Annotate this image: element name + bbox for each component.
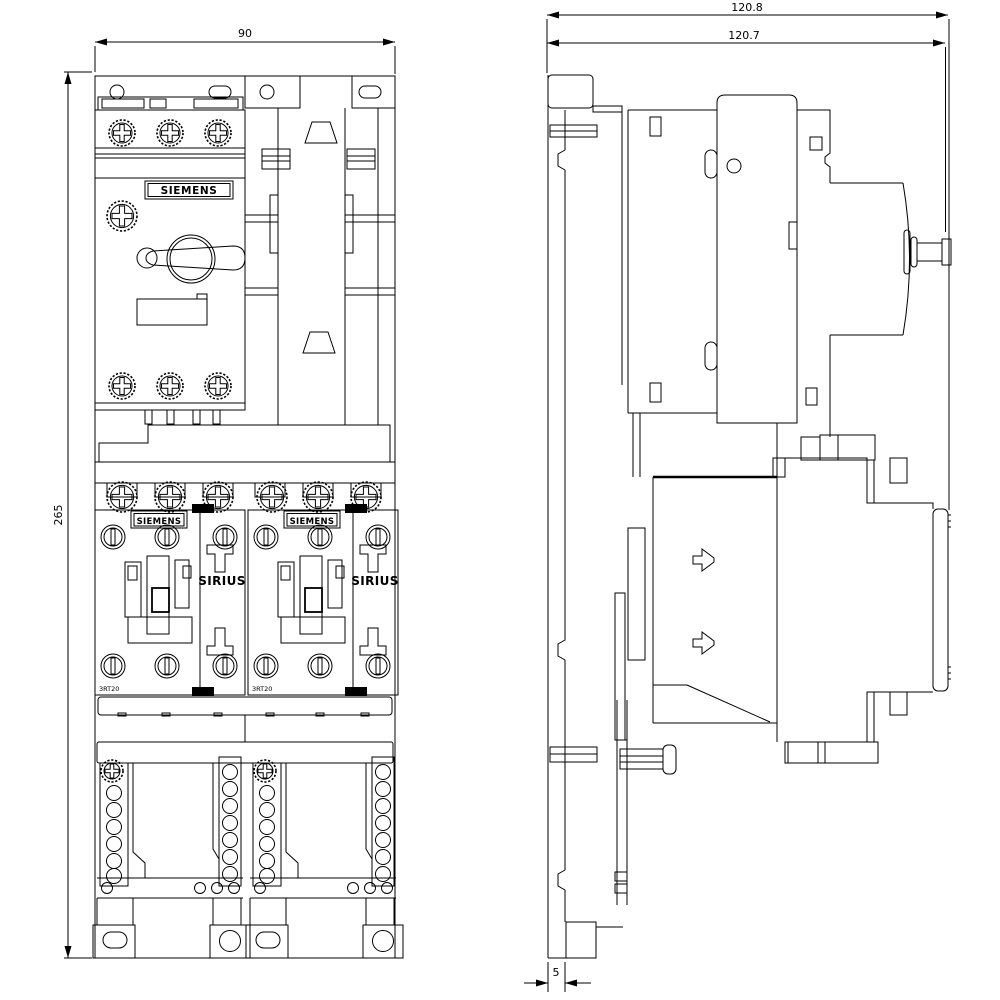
keyhole-slot-icon	[693, 632, 714, 654]
breaker-side-profile	[797, 110, 951, 460]
screw-icon	[205, 373, 231, 399]
dim-label-265: 265	[52, 505, 65, 526]
dimension-depth-overall: 120.8	[547, 1, 949, 510]
technical-drawing: SIEMENS SIRIUS 3RT20	[0, 0, 1000, 1000]
terminal-block-right	[246, 757, 403, 958]
adapter-rear-housing	[622, 95, 797, 423]
setting-window	[137, 299, 207, 325]
busbar-section	[95, 425, 395, 512]
wiring-link-section	[97, 697, 393, 763]
dim-label-120-7: 120.7	[728, 29, 760, 42]
dimension-drawing-canvas: SIEMENS SIRIUS 3RT20	[0, 0, 1000, 1000]
dimension-plate-thickness: 5	[524, 962, 591, 992]
dim-label-120-8: 120.8	[731, 1, 763, 14]
rail-clip	[305, 122, 337, 143]
screw-icon	[109, 373, 135, 399]
breaker-brand-label: SIEMENS	[161, 185, 218, 197]
keyhole-slot-icon	[693, 549, 714, 571]
contactor-right	[248, 504, 399, 696]
dimension-front-height: 265	[52, 72, 92, 958]
dim-label-5: 5	[553, 966, 560, 979]
mounting-hole	[260, 85, 274, 99]
mounting-slot	[209, 86, 231, 98]
terminal-strip	[933, 509, 948, 691]
terminal-block-left	[93, 757, 250, 958]
contactor-left	[95, 504, 246, 696]
screw-icon	[109, 120, 135, 146]
screw-icon	[157, 373, 183, 399]
front-view: SIEMENS	[93, 76, 403, 958]
mounting-screw-side	[620, 749, 663, 769]
dimension-depth-device: 120.7	[547, 29, 946, 232]
rotary-handle-icon	[167, 235, 215, 283]
rail-clip	[303, 332, 335, 353]
side-view	[548, 75, 951, 958]
screw-icon	[107, 201, 137, 231]
dimension-front-width: 90	[95, 27, 395, 74]
screw-icon	[157, 120, 183, 146]
circuit-breaker: SIEMENS	[95, 110, 245, 424]
mounting-plate-profile	[548, 75, 623, 958]
din-rail-adapter	[245, 108, 395, 425]
dim-label-90: 90	[238, 27, 252, 40]
contactor-side-profile	[615, 413, 951, 905]
mounting-slot	[359, 86, 381, 98]
screw-icon	[205, 120, 231, 146]
